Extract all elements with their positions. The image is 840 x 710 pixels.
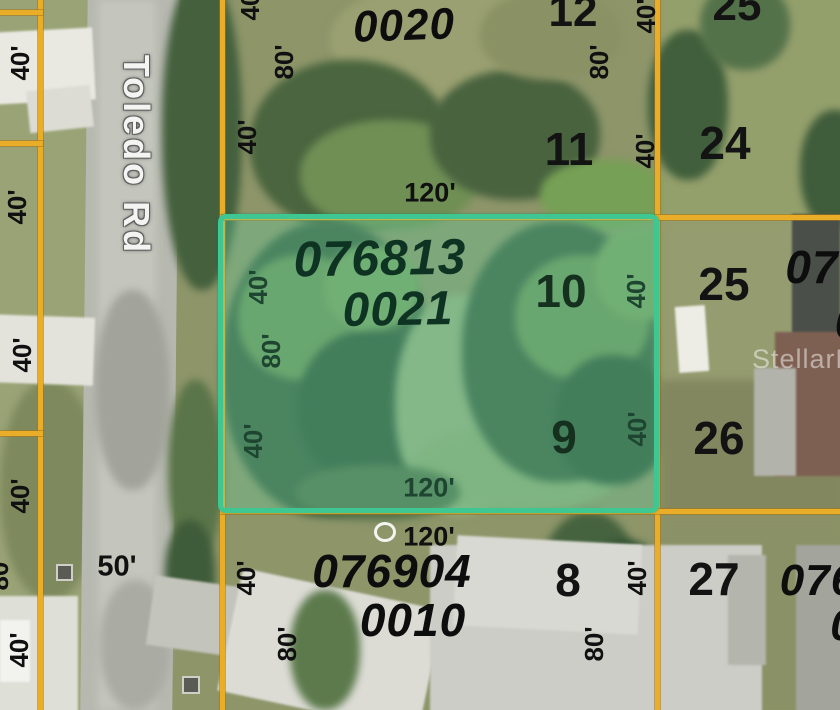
dimension-label: 80' [581, 626, 607, 661]
dimension-label: 80' [274, 626, 300, 661]
lot-number-label: 25 [713, 0, 762, 28]
lot-number-label: 9 [551, 414, 577, 460]
lot-number-label: 26 [693, 415, 744, 461]
lot-number-label: 8 [555, 557, 581, 603]
dimension-label: 40' [6, 632, 32, 667]
dimension-label: 80' [0, 555, 12, 590]
dimension-label: 40' [9, 337, 35, 372]
dimension-label: 120' [404, 180, 455, 207]
lot-number-label: 25 [698, 261, 749, 307]
lot-number-label: 10 [535, 268, 586, 314]
lot-number-label: 27 [688, 556, 739, 602]
dimension-label: 50' [97, 553, 136, 582]
dimension-label: 120' [403, 475, 454, 502]
dimension-label: 40' [233, 560, 259, 595]
dimension-label: 40' [4, 189, 30, 224]
dimension-label: 40' [7, 45, 33, 80]
dimension-label: 40' [633, 0, 659, 34]
parcel-id-label: 07 [785, 244, 838, 290]
lot-number-label: 11 [545, 126, 594, 172]
parcel-id-label: 076 [780, 559, 840, 603]
dimension-label: 40' [7, 478, 33, 513]
dimension-label: 40' [237, 0, 263, 21]
dimension-label: 40' [234, 119, 260, 154]
parcel-id-label: 0010 [360, 597, 466, 643]
parcel-id-label: 0021 [342, 285, 454, 335]
map-labels: 40'40'40'40'80'40'40'80'40'120'80'40'40'… [0, 0, 840, 710]
parcel-id-label: 0 [830, 604, 840, 648]
lot-number-label: 12 [549, 0, 598, 34]
dimension-label: 40' [245, 269, 271, 304]
parcel-id-label: 0020 [352, 2, 455, 50]
dimension-label: 80' [271, 44, 297, 79]
dimension-label: 40' [624, 411, 650, 446]
parcel-id-label: 076813 [293, 231, 467, 284]
dimension-label: 40' [623, 273, 649, 308]
dimension-label: 40' [632, 133, 658, 168]
dimension-label: 80' [258, 333, 284, 368]
dimension-label: 40' [240, 423, 266, 458]
lot-number-label: 24 [699, 120, 750, 166]
dimension-label: 40' [624, 560, 650, 595]
parcel-id-label: 0 [835, 299, 840, 345]
dimension-label: 80' [586, 44, 612, 79]
watermark: StellarMLS [752, 344, 840, 375]
aerial-parcel-map: Toledo Rd 40'40'40'40'80'40'40'80'40'120… [0, 0, 840, 710]
parcel-id-label: 076904 [312, 548, 472, 594]
